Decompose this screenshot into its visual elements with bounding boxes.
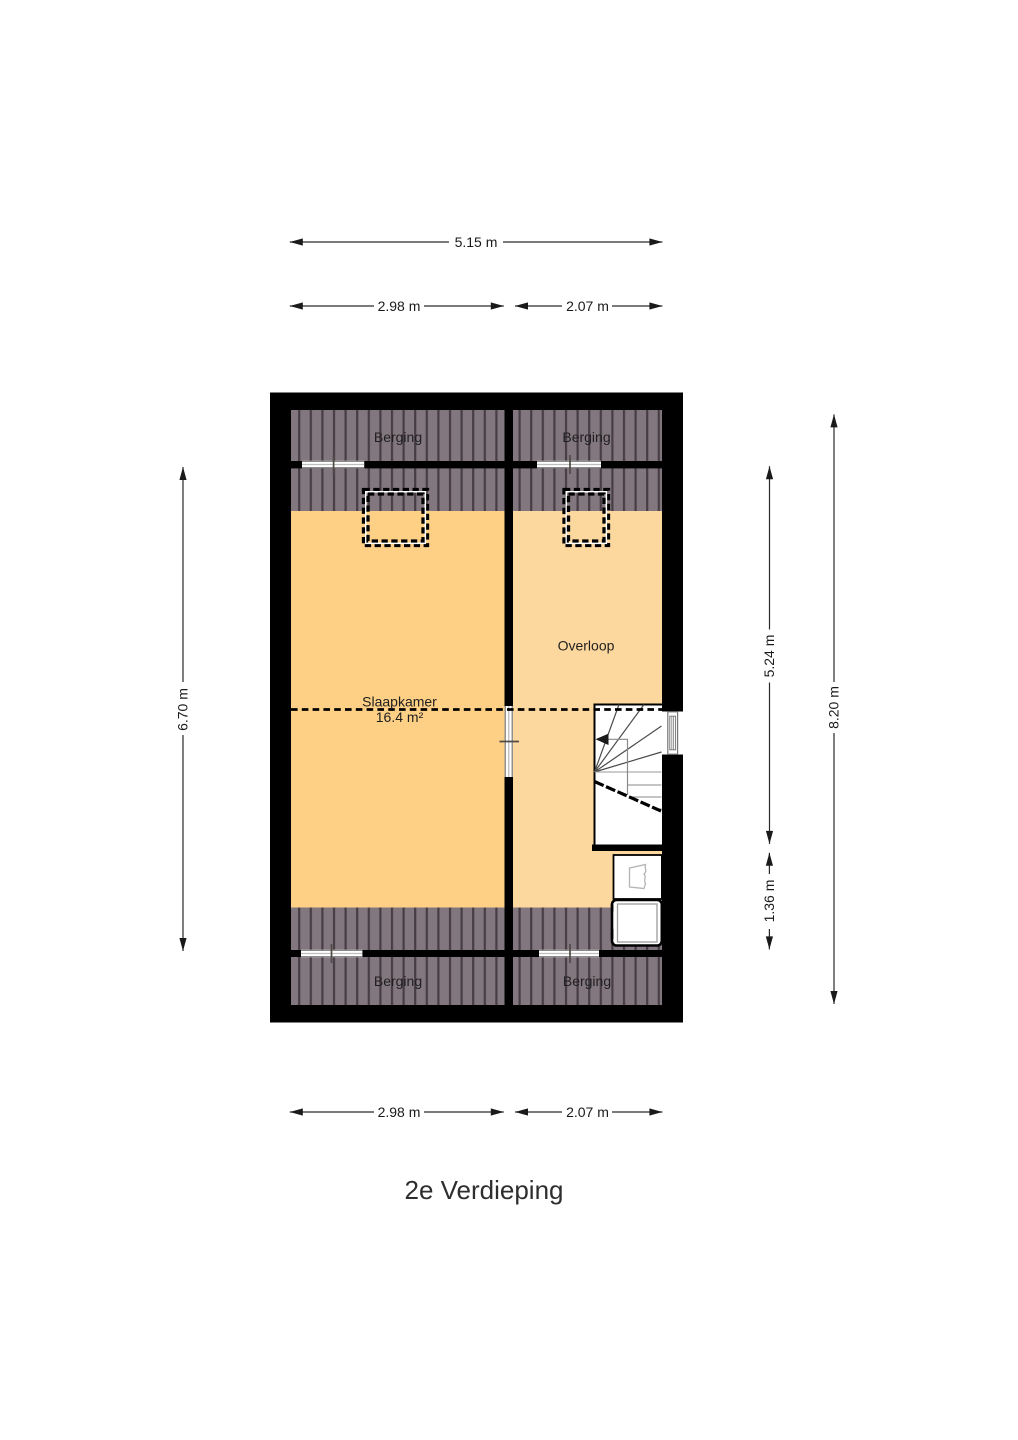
svg-text:6.70 m: 6.70 m	[175, 688, 191, 731]
svg-text:2e Verdieping: 2e Verdieping	[404, 1175, 563, 1205]
svg-text:16.4 m²: 16.4 m²	[376, 709, 424, 725]
svg-text:Overloop: Overloop	[558, 638, 615, 654]
svg-text:Slaapkamer: Slaapkamer	[362, 694, 437, 710]
svg-text:Berging: Berging	[374, 429, 422, 445]
svg-text:8.20 m: 8.20 m	[826, 686, 842, 729]
svg-text:Berging: Berging	[562, 429, 610, 445]
svg-text:Berging: Berging	[563, 973, 611, 989]
svg-text:Berging: Berging	[374, 973, 422, 989]
svg-text:5.15 m: 5.15 m	[455, 234, 498, 250]
svg-text:1.36 m: 1.36 m	[761, 880, 777, 923]
svg-text:2.98 m: 2.98 m	[378, 298, 421, 314]
svg-text:2.07 m: 2.07 m	[566, 1104, 609, 1120]
svg-text:5.24 m: 5.24 m	[761, 635, 777, 678]
svg-text:2.98 m: 2.98 m	[378, 1104, 421, 1120]
svg-text:2.07 m: 2.07 m	[566, 298, 609, 314]
